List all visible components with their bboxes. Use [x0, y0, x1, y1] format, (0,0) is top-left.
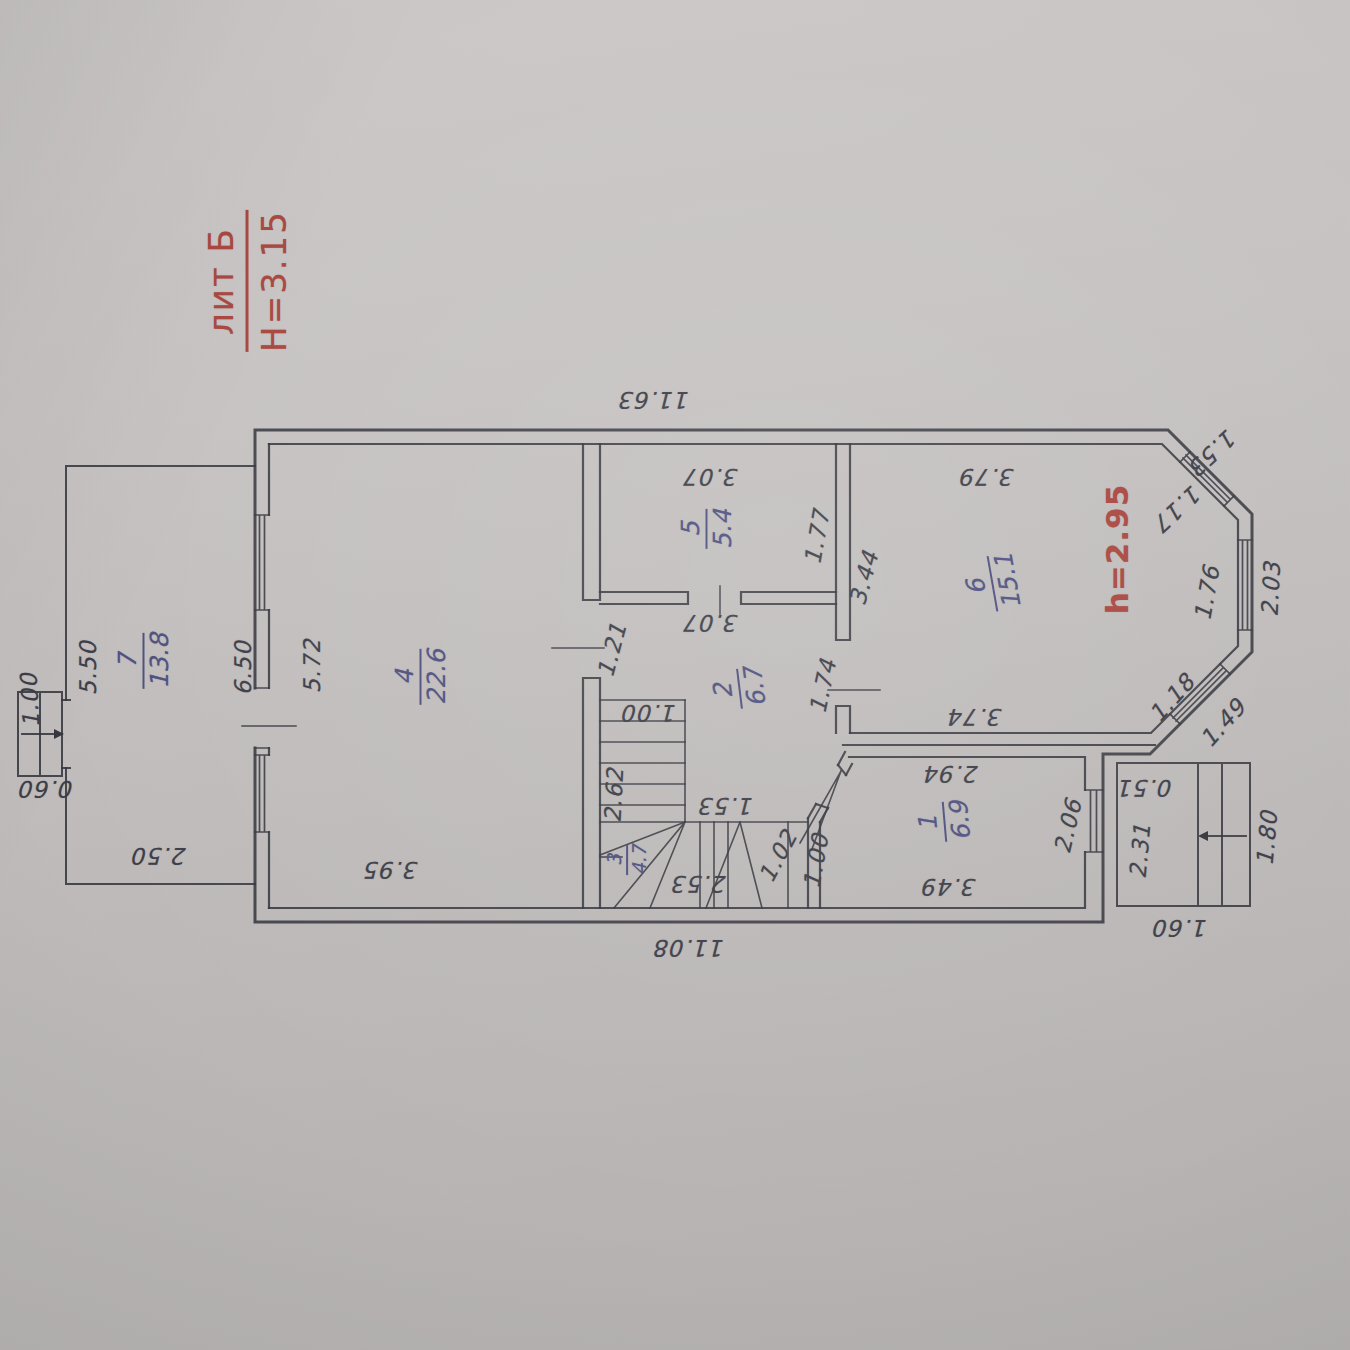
- room-label-2: 26.7: [707, 666, 770, 713]
- dim-room6-top: 3.79: [960, 464, 1015, 490]
- room-label-5: 55.4: [677, 509, 736, 549]
- dimension-ticks: [242, 586, 880, 726]
- dim-porch-right-width: 1.60: [1153, 915, 1208, 941]
- dim-outer-bottom: 11.08: [655, 935, 726, 961]
- scanned-floor-plan-page: лит Б H=3.15 h=2.95 713.8 422.6 55.4 26.…: [0, 0, 1350, 1350]
- arrowhead-left-icon: [1198, 831, 1208, 841]
- dim-porch-left-width: 0.60: [19, 776, 74, 802]
- dim-stairs-width: 1.00: [622, 700, 677, 726]
- dim-room4-side: 5.72: [299, 638, 325, 693]
- dim-room1-top: 2.94: [924, 761, 979, 787]
- dim-porch-right-step: 0.51: [1118, 775, 1173, 801]
- plan-title: лит Б H=3.15: [201, 210, 294, 352]
- dim-annex-width: 2.50: [132, 843, 187, 869]
- room-height-note: h=2.95: [1099, 484, 1135, 615]
- partition-room4-hall: [583, 444, 600, 908]
- room-label-3: 34.7: [604, 845, 650, 875]
- dim-annex-side: 5.50: [75, 640, 101, 695]
- dim-room2-width: 3.07: [684, 610, 739, 636]
- room-label-1: 16.9: [913, 800, 975, 845]
- door-annex-caps: [255, 688, 269, 748]
- dim-outer-top: 11.63: [620, 387, 691, 413]
- room-label-6: 615.1: [958, 551, 1026, 616]
- dim-room5-width: 3.07: [684, 464, 739, 490]
- dim-porch-right-side: 1.80: [1252, 809, 1283, 866]
- dim-room4-width: 3.95: [364, 857, 419, 883]
- partition-room5-bottom: [600, 592, 836, 604]
- dim-stairs-landing: 1.53: [699, 793, 754, 819]
- liter-label: лит Б: [201, 210, 249, 352]
- dim-room6-bottom: 3.74: [948, 704, 1003, 730]
- entrance-arrow-left-porch: [22, 729, 64, 739]
- dim-porch-right-depth: 2.31: [1125, 822, 1156, 879]
- dim-stairs-length: 2.62: [600, 767, 629, 824]
- window-left-a: [255, 515, 269, 610]
- dim-annex-wall: 6.50: [230, 640, 256, 695]
- dim-stairs-bottom: 2.53: [672, 871, 727, 897]
- dim-bay-right-outer: 2.03: [1257, 561, 1286, 618]
- window-left-b: [255, 755, 269, 832]
- floor-height-label: H=3.15: [249, 210, 294, 352]
- dim-porch-left-depth: 1.00: [16, 672, 45, 729]
- window-room1-right: [1085, 790, 1103, 852]
- floor-plan-drawing: [0, 0, 1350, 1350]
- room-label-4: 422.6: [391, 649, 450, 705]
- room-label-7: 713.8: [114, 633, 173, 689]
- dim-room1-bottom: 3.49: [922, 874, 977, 900]
- bay-window-right: [1238, 540, 1252, 630]
